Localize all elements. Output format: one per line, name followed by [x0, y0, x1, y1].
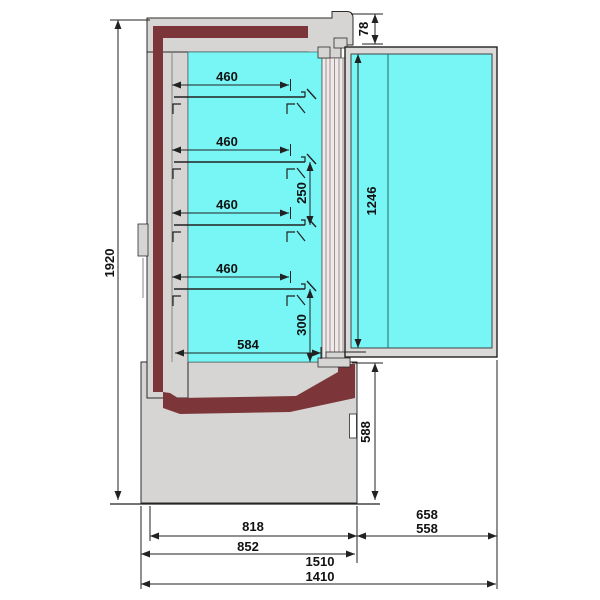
- dim-label-door-open-depth-b: 558: [416, 521, 438, 536]
- dim-label-total-depth-a: 1510: [306, 554, 335, 569]
- door-sill-step: [318, 358, 350, 367]
- dim-label-overall-height: 1920: [102, 249, 117, 278]
- dim-label-shelf-depth-3: 460: [216, 197, 238, 212]
- dim-label-interior-bottom-depth: 584: [237, 337, 259, 352]
- base-front-notch: [350, 414, 357, 438]
- cabinet-section-drawing: 1920 460 460 460 460 250 300 584 78 1246…: [0, 0, 600, 600]
- dim-label-total-depth-b: 1410: [306, 569, 335, 584]
- hinge-top-block: [318, 47, 330, 58]
- closed-door-glass-stack: [322, 58, 345, 362]
- dim-label-door-glass-height: 1246: [364, 187, 379, 216]
- dim-label-body-depth-inner: 818: [242, 519, 264, 534]
- dim-label-door-top-offset: 78: [356, 22, 371, 36]
- dim-label-shelf-depth-1: 460: [216, 69, 238, 84]
- dim-label-bottom-clearance: 300: [294, 314, 309, 336]
- dim-label-shelf-depth-2: 460: [216, 134, 238, 149]
- dim-label-door-open-depth-a: 658: [416, 507, 438, 522]
- dim-label-base-height: 588: [358, 421, 373, 443]
- technical-drawing-page: 1920 460 460 460 460 250 300 584 78 1246…: [0, 0, 600, 600]
- dim-label-shelf-depth-4: 460: [216, 261, 238, 276]
- dim-label-body-depth: 852: [237, 539, 259, 554]
- wall-spacer: [138, 224, 148, 256]
- dim-label-shelf-spacing: 250: [294, 182, 309, 204]
